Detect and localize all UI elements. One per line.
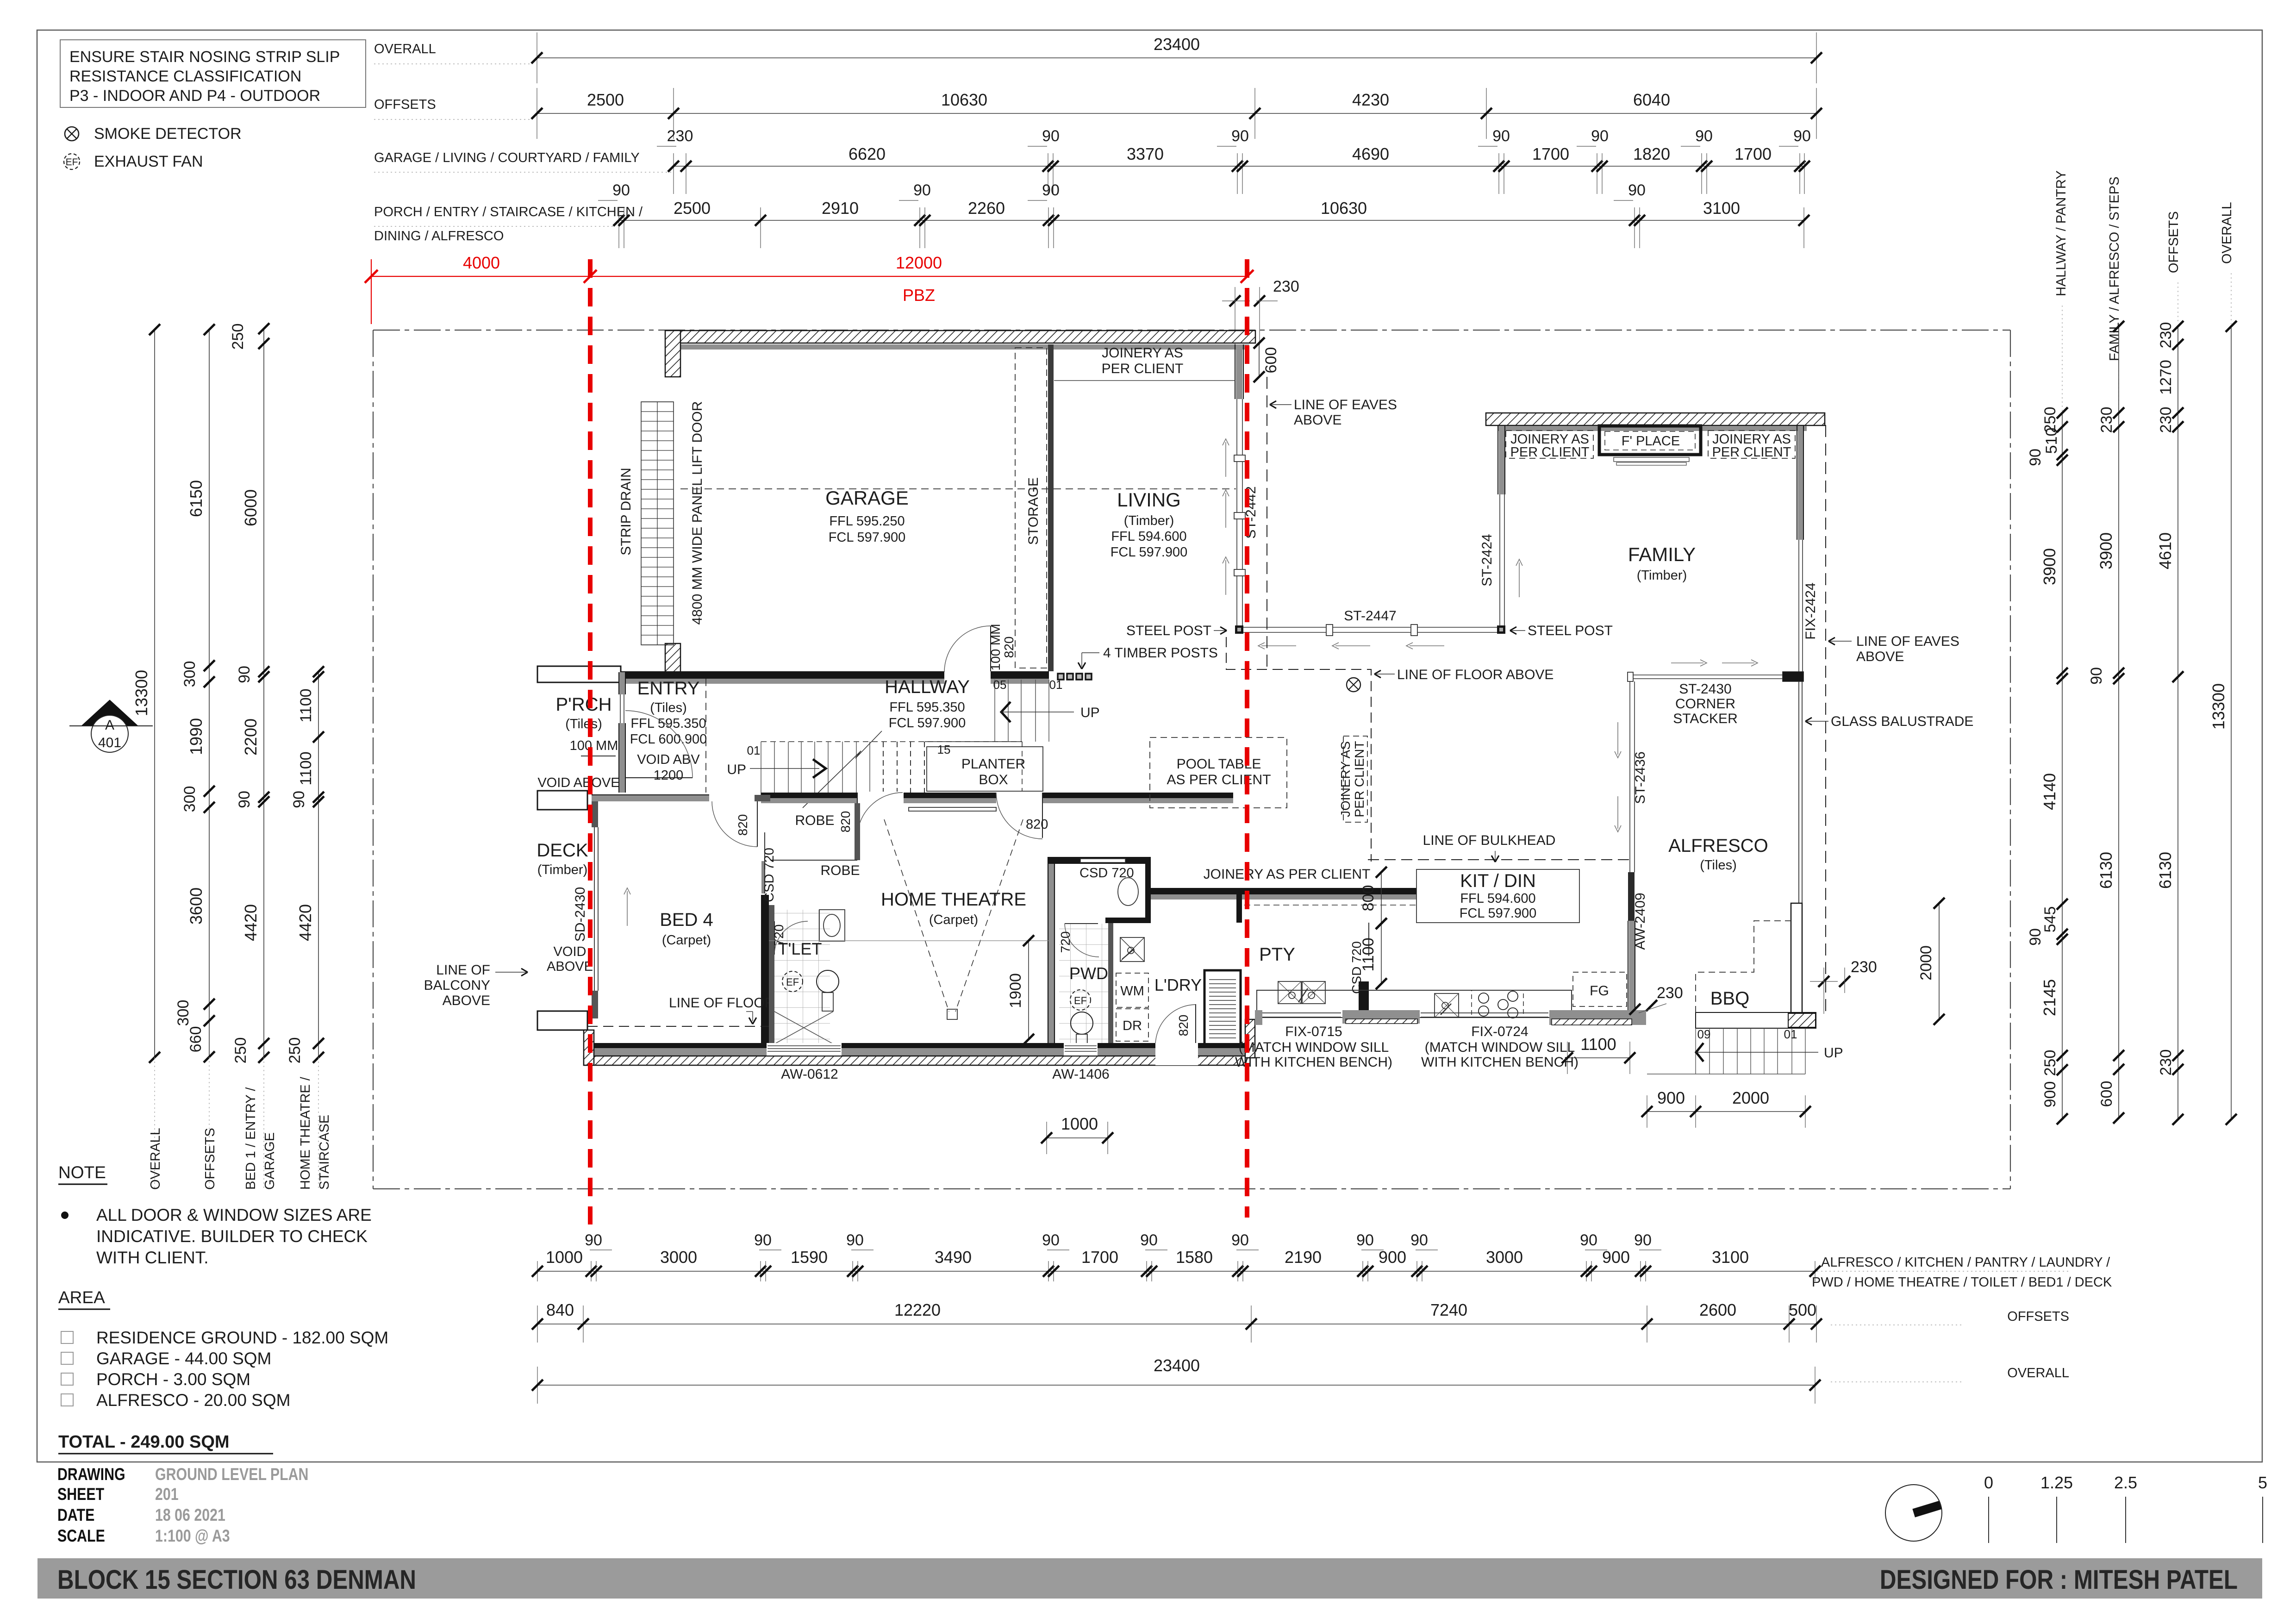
svg-text:BED 4: BED 4: [660, 910, 713, 930]
svg-text:WITH KITCHEN BENCH): WITH KITCHEN BENCH): [1421, 1055, 1578, 1070]
svg-text:PBZ: PBZ: [903, 286, 935, 305]
svg-text:VOID ABV: VOID ABV: [637, 752, 700, 767]
svg-text:90: 90: [1042, 127, 1060, 145]
svg-text:ROBE: ROBE: [820, 863, 860, 878]
svg-text:230: 230: [2157, 407, 2175, 433]
svg-text:STAIRCASE: STAIRCASE: [317, 1115, 332, 1190]
svg-text:DR: DR: [1123, 1018, 1142, 1033]
svg-text:1590: 1590: [791, 1248, 828, 1267]
svg-text:2200: 2200: [241, 718, 260, 756]
svg-text:WM: WM: [1120, 984, 1144, 999]
svg-text:GARAGE: GARAGE: [262, 1132, 277, 1190]
svg-text:300: 300: [181, 661, 199, 687]
svg-text:(Carpet): (Carpet): [929, 912, 978, 927]
svg-text:500: 500: [1789, 1300, 1816, 1319]
svg-text:OFFSETS: OFFSETS: [2007, 1309, 2069, 1324]
svg-text:ALFRESCO - 20.00 SQM: ALFRESCO - 20.00 SQM: [96, 1391, 290, 1410]
svg-text:90: 90: [1356, 1231, 1374, 1249]
svg-text:LINE OF BULKHEAD: LINE OF BULKHEAD: [1423, 833, 1556, 848]
svg-text:1100: 1100: [1360, 937, 1377, 971]
svg-text:SMOKE DETECTOR: SMOKE DETECTOR: [94, 125, 242, 143]
svg-text:RESISTANCE CLASSIFICATION: RESISTANCE CLASSIFICATION: [69, 68, 301, 85]
svg-text:EF: EF: [1074, 995, 1087, 1006]
svg-text:PER CLIENT: PER CLIENT: [1510, 445, 1590, 460]
svg-text:01: 01: [1784, 1027, 1797, 1041]
svg-text:18 06 2021: 18 06 2021: [155, 1505, 225, 1525]
svg-text:1100: 1100: [297, 751, 315, 785]
svg-text:100 MM: 100 MM: [988, 624, 1003, 670]
svg-text:1700: 1700: [1734, 144, 1772, 163]
svg-text:09: 09: [1697, 1027, 1711, 1041]
svg-text:SHEET: SHEET: [57, 1485, 104, 1504]
svg-text:90: 90: [1628, 181, 1646, 199]
svg-text:2.5: 2.5: [2114, 1473, 2137, 1492]
svg-text:ABOVE: ABOVE: [547, 959, 593, 974]
svg-text:90: 90: [846, 1231, 864, 1249]
svg-text:AW-0612: AW-0612: [781, 1067, 838, 1082]
svg-text:230: 230: [1851, 958, 1877, 976]
svg-text:4140: 4140: [2040, 773, 2059, 810]
svg-text:900: 900: [1602, 1248, 1630, 1267]
svg-text:6150: 6150: [187, 480, 206, 517]
svg-text:BED 1 / ENTRY /: BED 1 / ENTRY /: [243, 1087, 258, 1190]
svg-text:01: 01: [1049, 678, 1063, 692]
svg-text:90: 90: [290, 791, 308, 808]
svg-text:4690: 4690: [1352, 144, 1389, 163]
svg-text:AREA: AREA: [58, 1288, 105, 1307]
svg-text:800: 800: [1360, 885, 1377, 912]
svg-text:250: 250: [232, 1037, 250, 1064]
svg-text:510: 510: [2043, 428, 2060, 454]
svg-text:OVERALL: OVERALL: [2220, 202, 2234, 264]
svg-text:P3 - INDOOR AND P4 - OUTDOOR: P3 - INDOOR AND P4 - OUTDOOR: [69, 87, 320, 105]
svg-text:CORNER: CORNER: [1675, 696, 1735, 712]
svg-text:660: 660: [187, 1026, 205, 1053]
svg-text:3000: 3000: [1486, 1248, 1523, 1267]
svg-text:300: 300: [175, 1000, 192, 1026]
svg-text:4420: 4420: [241, 904, 260, 941]
svg-text:23400: 23400: [1154, 1356, 1200, 1375]
svg-text:90: 90: [1231, 1231, 1249, 1249]
svg-text:4230: 4230: [1352, 90, 1389, 109]
svg-text:250: 250: [286, 1037, 304, 1064]
svg-text:1100: 1100: [1580, 1035, 1616, 1054]
svg-text:PER CLIENT: PER CLIENT: [1102, 361, 1184, 376]
svg-text:FFL 594.600: FFL 594.600: [1460, 891, 1535, 906]
svg-text:1820: 1820: [1633, 144, 1670, 163]
svg-text:NOTE: NOTE: [58, 1163, 106, 1182]
svg-text:90: 90: [1140, 1231, 1158, 1249]
svg-text:FCL 600.900: FCL 600.900: [630, 732, 707, 747]
svg-text:FFL 595.350: FFL 595.350: [630, 716, 706, 731]
svg-text:900: 900: [2041, 1081, 2059, 1108]
svg-text:90: 90: [2027, 449, 2044, 466]
svg-text:OFFSETS: OFFSETS: [2166, 211, 2181, 273]
svg-text:AW-1406: AW-1406: [1052, 1067, 1109, 1082]
svg-text:1200: 1200: [654, 768, 684, 783]
svg-text:01: 01: [747, 743, 761, 757]
svg-text:840: 840: [546, 1300, 574, 1319]
svg-text:6000: 6000: [241, 489, 260, 526]
svg-text:900: 900: [1657, 1088, 1685, 1107]
svg-text:90: 90: [1231, 127, 1249, 145]
svg-text:EXHAUST FAN: EXHAUST FAN: [94, 153, 203, 170]
svg-text:401: 401: [98, 735, 121, 750]
svg-text:RESIDENCE GROUND - 182.00 SQM: RESIDENCE GROUND - 182.00 SQM: [96, 1328, 388, 1347]
svg-text:PER CLIENT: PER CLIENT: [1712, 445, 1791, 460]
svg-text:23400: 23400: [1154, 35, 1200, 54]
svg-text:(Timber): (Timber): [1124, 513, 1174, 528]
svg-text:0: 0: [1984, 1473, 1993, 1492]
svg-text:820: 820: [736, 814, 750, 836]
svg-text:820: 820: [1026, 817, 1048, 832]
svg-text:3900: 3900: [2040, 548, 2059, 585]
svg-text:DECK: DECK: [537, 840, 588, 861]
svg-text:(MATCH WINDOW SILL: (MATCH WINDOW SILL: [1425, 1040, 1575, 1055]
svg-text:90: 90: [1591, 127, 1609, 145]
svg-text:DESIGNED FOR : MITESH PATEL: DESIGNED FOR : MITESH PATEL: [1880, 1565, 2238, 1595]
svg-text:FIX-2424: FIX-2424: [1803, 582, 1818, 639]
svg-text:GARAGE - 44.00 SQM: GARAGE - 44.00 SQM: [96, 1349, 271, 1368]
svg-text:6130: 6130: [2156, 852, 2175, 889]
svg-text:ENTRY: ENTRY: [637, 678, 700, 699]
svg-text:2190: 2190: [1285, 1248, 1322, 1267]
svg-text:2260: 2260: [968, 199, 1005, 218]
svg-text:DINING / ALFRESCO: DINING / ALFRESCO: [374, 229, 504, 244]
svg-text:1000: 1000: [1061, 1114, 1098, 1133]
svg-text:90: 90: [1695, 127, 1713, 145]
svg-text:100 MM: 100 MM: [570, 738, 618, 753]
svg-text:FCL 597.900: FCL 597.900: [1111, 545, 1188, 560]
svg-text:230: 230: [2157, 1049, 2175, 1076]
svg-text:JOINERY AS PER CLIENT: JOINERY AS PER CLIENT: [1204, 867, 1371, 882]
svg-text:(Timber): (Timber): [537, 862, 587, 877]
svg-text:4 TIMBER POSTS: 4 TIMBER POSTS: [1103, 645, 1218, 661]
svg-text:1700: 1700: [1081, 1248, 1118, 1267]
svg-text:STACKER: STACKER: [1673, 711, 1737, 726]
svg-text:4800 MM WIDE PANEL LIFT DOOR: 4800 MM WIDE PANEL LIFT DOOR: [690, 401, 705, 625]
svg-text:ROBE: ROBE: [795, 813, 834, 828]
svg-text:PWD / HOME THEATRE / TOILET /: PWD / HOME THEATRE / TOILET / BED1 / DEC…: [1812, 1275, 2112, 1290]
svg-text:250: 250: [229, 324, 247, 350]
svg-text:UP: UP: [1824, 1045, 1843, 1061]
svg-text:GARAGE: GARAGE: [825, 487, 909, 509]
svg-text:OVERALL: OVERALL: [2007, 1366, 2069, 1380]
svg-text:1270: 1270: [2157, 360, 2175, 395]
svg-text:BOX: BOX: [979, 772, 1008, 787]
svg-text:DATE: DATE: [57, 1505, 94, 1525]
svg-text:230: 230: [2157, 322, 2175, 349]
svg-text:ST-2430: ST-2430: [1679, 681, 1731, 697]
svg-text:VOID ABOVE: VOID ABOVE: [537, 775, 619, 790]
svg-text:ST-2447: ST-2447: [1344, 608, 1396, 624]
svg-text:1700: 1700: [1532, 144, 1569, 163]
svg-text:90: 90: [1793, 127, 1811, 145]
svg-text:05: 05: [993, 678, 1007, 692]
svg-text:JOINERY AS: JOINERY AS: [1102, 345, 1183, 361]
svg-text:2000: 2000: [1917, 945, 1935, 981]
svg-text:(Carpet): (Carpet): [662, 933, 711, 948]
svg-text:FCL 597.900: FCL 597.900: [1460, 906, 1537, 921]
svg-text:WITH KITCHEN BENCH): WITH KITCHEN BENCH): [1235, 1055, 1392, 1070]
svg-text:230: 230: [2098, 407, 2115, 433]
svg-text:820: 820: [838, 811, 853, 833]
svg-text:SCALE: SCALE: [57, 1526, 105, 1546]
svg-text:FFL 595.350: FFL 595.350: [889, 700, 965, 715]
svg-text:15: 15: [937, 743, 951, 756]
svg-text:FIX-0715: FIX-0715: [1285, 1024, 1342, 1039]
svg-text:INDICATIVE. BUILDER TO CHECK: INDICATIVE. BUILDER TO CHECK: [96, 1227, 368, 1246]
svg-text:2500: 2500: [674, 199, 711, 218]
svg-text:6130: 6130: [2096, 852, 2115, 889]
svg-text:2145: 2145: [2040, 979, 2059, 1016]
svg-text:13300: 13300: [2209, 683, 2228, 730]
svg-text:820: 820: [1002, 637, 1016, 658]
svg-text:VOID: VOID: [554, 944, 586, 959]
svg-text:(Tiles): (Tiles): [1700, 858, 1736, 873]
svg-text:1:100 @ A3: 1:100 @ A3: [155, 1526, 230, 1546]
svg-text:FIX-0724: FIX-0724: [1471, 1024, 1528, 1039]
svg-text:90: 90: [913, 181, 931, 199]
svg-text:ABOVE: ABOVE: [1856, 649, 1904, 664]
svg-text:DRAWING: DRAWING: [57, 1465, 125, 1484]
svg-text:L'DRY: L'DRY: [1154, 975, 1202, 994]
svg-text:ENSURE STAIR NOSING STRIP SLIP: ENSURE STAIR NOSING STRIP SLIP: [69, 48, 340, 66]
svg-text:KIT / DIN: KIT / DIN: [1460, 871, 1536, 891]
svg-text:5: 5: [2258, 1473, 2267, 1492]
svg-text:OFFSETS: OFFSETS: [374, 97, 436, 112]
svg-text:UP: UP: [727, 762, 746, 777]
svg-text:FFL 595.250: FFL 595.250: [829, 514, 905, 529]
svg-text:10630: 10630: [1321, 199, 1367, 218]
svg-text:GLASS BALUSTRADE: GLASS BALUSTRADE: [1831, 714, 1973, 729]
svg-text:90: 90: [1580, 1231, 1597, 1249]
svg-text:1900: 1900: [1007, 973, 1024, 1008]
svg-text:FCL 597.900: FCL 597.900: [889, 716, 966, 731]
svg-text:BLOCK 15 SECTION 63 DENMAN: BLOCK 15 SECTION 63 DENMAN: [57, 1565, 416, 1595]
svg-text:3900: 3900: [2096, 532, 2115, 569]
svg-text:600: 600: [1262, 347, 1280, 374]
svg-text:STORAGE: STORAGE: [1026, 477, 1041, 545]
svg-text:FG: FG: [1590, 983, 1609, 999]
svg-text:90: 90: [2088, 667, 2105, 685]
svg-text:FCL 597.900: FCL 597.900: [829, 530, 906, 545]
svg-text:6620: 6620: [849, 144, 886, 163]
svg-text:STEEL POST: STEEL POST: [1528, 623, 1613, 638]
svg-text:12000: 12000: [896, 253, 942, 272]
svg-text:SD-2430: SD-2430: [573, 887, 588, 942]
svg-text:TOTAL - 249.00 SQM: TOTAL - 249.00 SQM: [58, 1432, 230, 1452]
svg-text:300: 300: [181, 786, 199, 812]
svg-text:10630: 10630: [941, 90, 987, 109]
svg-text:(MATCH WINDOW SILL: (MATCH WINDOW SILL: [1239, 1040, 1389, 1055]
svg-text:ALFRESCO: ALFRESCO: [1668, 836, 1768, 856]
svg-text:90: 90: [2027, 928, 2044, 946]
svg-text:JOINERY AS: JOINERY AS: [1338, 741, 1353, 817]
svg-text:2000: 2000: [1732, 1088, 1769, 1107]
svg-text:PTY: PTY: [1259, 944, 1295, 965]
svg-text:1.25: 1.25: [2040, 1473, 2073, 1492]
svg-text:1580: 1580: [1176, 1248, 1213, 1267]
svg-text:90: 90: [236, 791, 253, 808]
svg-text:LINE OF EAVES: LINE OF EAVES: [1294, 397, 1397, 412]
svg-text:STEEL POST: STEEL POST: [1126, 623, 1211, 638]
svg-text:90: 90: [612, 181, 630, 199]
svg-text:LIVING: LIVING: [1117, 489, 1181, 511]
svg-text:PER CLIENT: PER CLIENT: [1352, 741, 1366, 818]
svg-text:13300: 13300: [132, 670, 151, 716]
svg-text:90: 90: [236, 666, 253, 683]
svg-text:3100: 3100: [1712, 1248, 1749, 1267]
svg-text:90: 90: [754, 1231, 772, 1249]
svg-text:FFL 594.600: FFL 594.600: [1111, 529, 1186, 544]
svg-text:600: 600: [2098, 1081, 2115, 1107]
svg-text:1100: 1100: [297, 688, 315, 722]
svg-text:ST-2424: ST-2424: [1479, 534, 1495, 586]
svg-text:720: 720: [1058, 931, 1073, 953]
svg-text:LINE OF EAVES: LINE OF EAVES: [1856, 634, 1959, 649]
svg-text:GROUND LEVEL PLAN: GROUND LEVEL PLAN: [155, 1465, 308, 1484]
svg-text:3000: 3000: [660, 1248, 697, 1267]
svg-text:3600: 3600: [187, 887, 206, 924]
svg-text:90: 90: [1634, 1231, 1652, 1249]
svg-text:EF: EF: [66, 157, 78, 168]
svg-text:OVERALL: OVERALL: [374, 42, 436, 56]
svg-text:820: 820: [1176, 1015, 1191, 1037]
svg-text:90: 90: [585, 1231, 602, 1249]
svg-text:STRIP DRAIN: STRIP DRAIN: [618, 468, 634, 555]
svg-text:2500: 2500: [587, 90, 624, 109]
svg-text:2910: 2910: [822, 199, 859, 218]
svg-text:4420: 4420: [296, 904, 315, 941]
svg-text:(Tiles): (Tiles): [565, 717, 602, 731]
svg-text:4000: 4000: [463, 253, 500, 272]
svg-text:HOME THEATRE: HOME THEATRE: [881, 889, 1026, 910]
svg-text:HALLWAY / PANTRY: HALLWAY / PANTRY: [2054, 170, 2069, 296]
svg-text:HOME THEATRE /: HOME THEATRE /: [298, 1076, 313, 1190]
svg-text:90: 90: [1042, 1231, 1060, 1249]
svg-text:ABOVE: ABOVE: [443, 993, 490, 1008]
svg-text:ABOVE: ABOVE: [1294, 412, 1341, 428]
svg-text:230: 230: [1657, 984, 1683, 1002]
svg-text:BALCONY: BALCONY: [424, 978, 490, 993]
svg-text:FAMILY / ALFRESCO / STEPS: FAMILY / ALFRESCO / STEPS: [2107, 176, 2122, 361]
svg-text:900: 900: [1379, 1248, 1406, 1267]
svg-text:ALFRESCO / KITCHEN / PANTRY /: ALFRESCO / KITCHEN / PANTRY / LAUNDRY /: [1821, 1255, 2110, 1270]
svg-text:PORCH - 3.00 SQM: PORCH - 3.00 SQM: [96, 1370, 250, 1389]
svg-text:OFFSETS: OFFSETS: [203, 1128, 218, 1190]
svg-text:P'RCH: P'RCH: [556, 694, 612, 715]
svg-text:LINE OF: LINE OF: [436, 962, 490, 978]
svg-text:(Timber): (Timber): [1637, 568, 1687, 583]
svg-text:3490: 3490: [935, 1248, 972, 1267]
svg-text:3100: 3100: [1703, 199, 1740, 218]
svg-text:7240: 7240: [1430, 1300, 1467, 1319]
svg-text:PWD: PWD: [1069, 964, 1108, 983]
svg-text:F' PLACE: F' PLACE: [1622, 434, 1680, 449]
svg-text:230: 230: [667, 127, 693, 145]
svg-text:WITH CLIENT.: WITH CLIENT.: [96, 1248, 209, 1267]
svg-text:1990: 1990: [187, 718, 206, 755]
svg-text:12220: 12220: [894, 1300, 941, 1319]
svg-text:EF: EF: [786, 976, 799, 988]
svg-text:BBQ: BBQ: [1710, 988, 1749, 1009]
svg-text:PORCH / ENTRY / STAIRCASE / KI: PORCH / ENTRY / STAIRCASE / KITCHEN /: [374, 205, 643, 219]
svg-text:ST-2436: ST-2436: [1633, 751, 1648, 804]
svg-text:UP: UP: [1080, 705, 1100, 720]
svg-text:LINE OF FLOOR ABOVE: LINE OF FLOOR ABOVE: [1397, 667, 1554, 682]
svg-text:230: 230: [1273, 278, 1299, 295]
svg-text:90: 90: [1492, 127, 1510, 145]
svg-text:HALLWAY: HALLWAY: [885, 677, 970, 697]
svg-text:90: 90: [1042, 181, 1060, 199]
svg-text:3370: 3370: [1127, 144, 1164, 163]
svg-text:4610: 4610: [2156, 532, 2175, 569]
svg-text:CSD 720: CSD 720: [762, 848, 777, 902]
svg-text:ALL DOOR & WINDOW SIZES ARE: ALL DOOR & WINDOW SIZES ARE: [96, 1206, 372, 1224]
svg-text:6040: 6040: [1633, 90, 1670, 109]
svg-text:OVERALL: OVERALL: [148, 1128, 163, 1190]
svg-text:2600: 2600: [1699, 1300, 1736, 1319]
svg-text:1000: 1000: [546, 1248, 583, 1267]
svg-text:PLANTER: PLANTER: [961, 756, 1025, 772]
svg-text:AS PER CLIENT: AS PER CLIENT: [1167, 772, 1271, 787]
svg-text:250: 250: [2041, 1050, 2059, 1076]
svg-text:GARAGE / LIVING / COURTYARD /: GARAGE / LIVING / COURTYARD / FAMILY: [374, 150, 640, 165]
svg-text:90: 90: [1410, 1231, 1428, 1249]
svg-text:A: A: [105, 718, 114, 733]
svg-text:720: 720: [772, 924, 786, 946]
svg-text:201: 201: [155, 1485, 179, 1504]
svg-text:(Tiles): (Tiles): [650, 700, 686, 715]
svg-text:FAMILY: FAMILY: [1628, 543, 1696, 565]
